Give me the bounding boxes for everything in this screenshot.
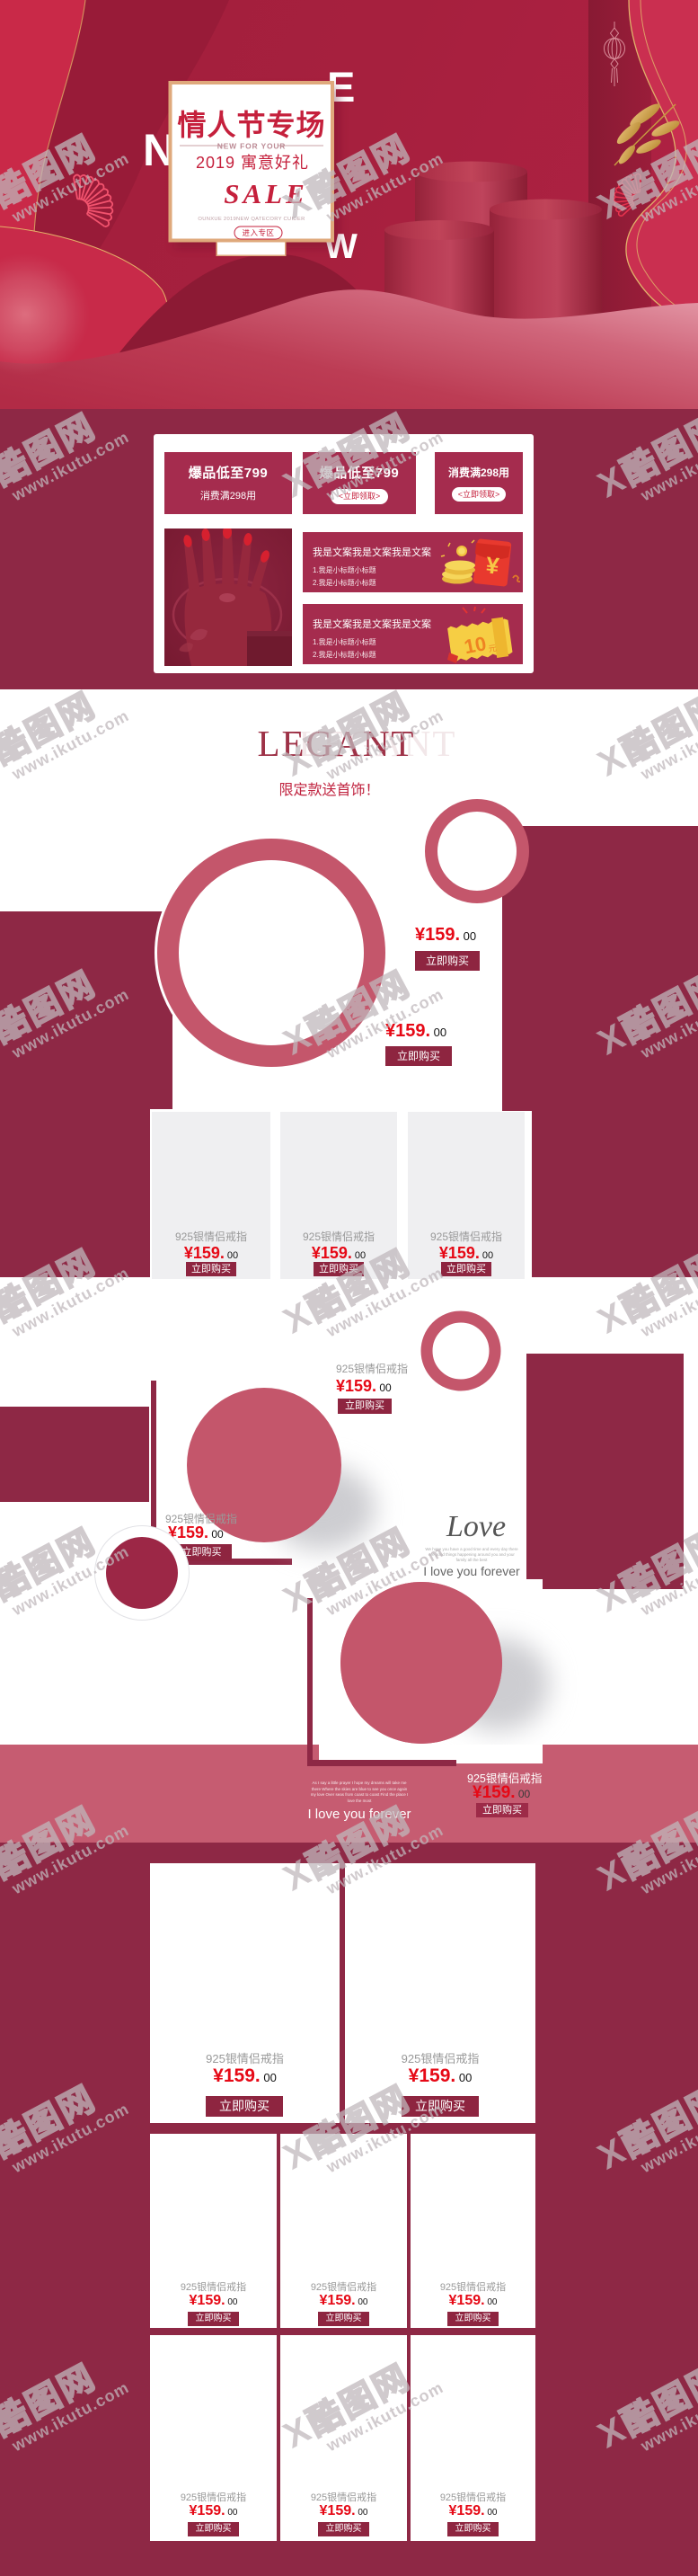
- svg-text:NEW FOR YOUR: NEW FOR YOUR: [217, 142, 287, 151]
- svg-text:元: 元: [488, 644, 497, 653]
- svg-text:10: 10: [463, 632, 489, 658]
- svg-text:2019 寓意好礼: 2019 寓意好礼: [196, 154, 309, 172]
- svg-text:进入专区: 进入专区: [242, 228, 274, 237]
- svg-text:OUNXUE 2019NEW QATECORY CUIDER: OUNXUE 2019NEW QATECORY CUIDER: [198, 217, 305, 222]
- svg-text:情人节专场: 情人节专场: [177, 109, 325, 141]
- svg-text:SALE: SALE: [224, 178, 308, 209]
